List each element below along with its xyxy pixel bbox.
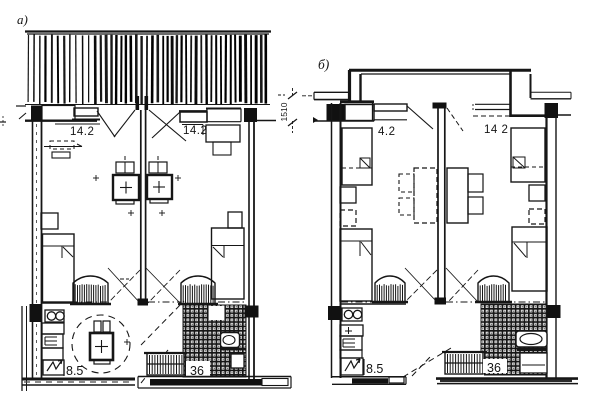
svg-text:б): б) bbox=[318, 57, 330, 72]
svg-text:а): а) bbox=[17, 12, 28, 27]
svg-text:8.5: 8.5 bbox=[66, 364, 83, 378]
svg-text:1510: 1510 bbox=[279, 102, 289, 121]
svg-text:14.2: 14.2 bbox=[70, 126, 94, 138]
svg-text:4.2: 4.2 bbox=[378, 126, 396, 138]
svg-text:36: 36 bbox=[487, 361, 501, 375]
svg-text:14.2: 14.2 bbox=[183, 125, 207, 137]
svg-text:8.5: 8.5 bbox=[366, 362, 383, 376]
svg-text:14 2: 14 2 bbox=[484, 124, 508, 136]
